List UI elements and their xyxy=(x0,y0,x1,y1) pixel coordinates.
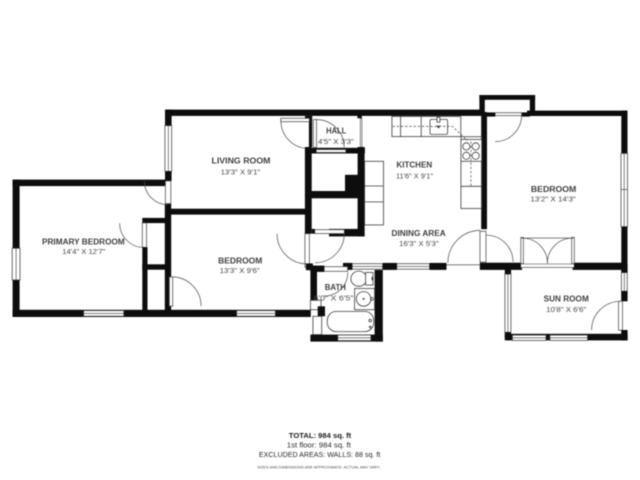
svg-text:16'3" X 5'3": 16'3" X 5'3" xyxy=(399,239,439,248)
svg-text:4'5" X 3'3": 4'5" X 3'3" xyxy=(318,137,354,146)
svg-text:BATH: BATH xyxy=(325,283,346,292)
svg-text:BEDROOM: BEDROOM xyxy=(218,257,262,266)
svg-text:BEDROOM: BEDROOM xyxy=(531,185,576,194)
svg-text:TOTAL: 984 sq. ft: TOTAL: 984 sq. ft xyxy=(289,431,352,440)
svg-text:HALL: HALL xyxy=(326,127,346,136)
svg-text:13'3" X 9'1": 13'3" X 9'1" xyxy=(221,168,261,177)
svg-text:14'4" X 12'7": 14'4" X 12'7" xyxy=(62,247,105,256)
svg-text:6'0" X 6'5": 6'0" X 6'5" xyxy=(314,293,354,302)
svg-text:10'8" X 6'6": 10'8" X 6'6" xyxy=(546,305,586,314)
svg-text:SUN ROOM: SUN ROOM xyxy=(544,295,589,304)
svg-text:13'3" X 9'6": 13'3" X 9'6" xyxy=(220,266,260,275)
svg-text:LIVING ROOM: LIVING ROOM xyxy=(212,156,271,165)
svg-text:13'2" X 14'3": 13'2" X 14'3" xyxy=(530,195,576,204)
svg-text:EXCLUDED AREAS: WALLS: 88 sq.: EXCLUDED AREAS: WALLS: 88 sq. ft xyxy=(259,450,380,459)
svg-text:KITCHEN: KITCHEN xyxy=(396,161,432,170)
svg-text:11'6" X 9'1": 11'6" X 9'1" xyxy=(396,171,433,180)
svg-text:1st floor: 984 sq. ft: 1st floor: 984 sq. ft xyxy=(287,440,352,449)
svg-text:PRIMARY BEDROOM: PRIMARY BEDROOM xyxy=(42,237,125,246)
svg-text:DINING AREA: DINING AREA xyxy=(392,229,446,238)
svg-text:SIZES AND DIMENSIONS ARE APPRO: SIZES AND DIMENSIONS ARE APPROXIMATE. AC… xyxy=(257,464,380,469)
